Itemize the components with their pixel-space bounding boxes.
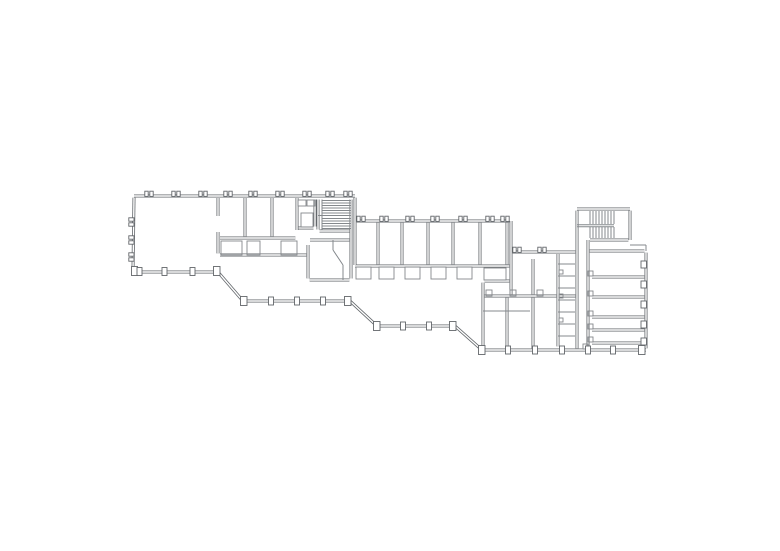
drawing-sheet <box>0 0 780 551</box>
floor-plan-drawing <box>0 0 780 551</box>
floor-plan-layers <box>129 191 647 354</box>
